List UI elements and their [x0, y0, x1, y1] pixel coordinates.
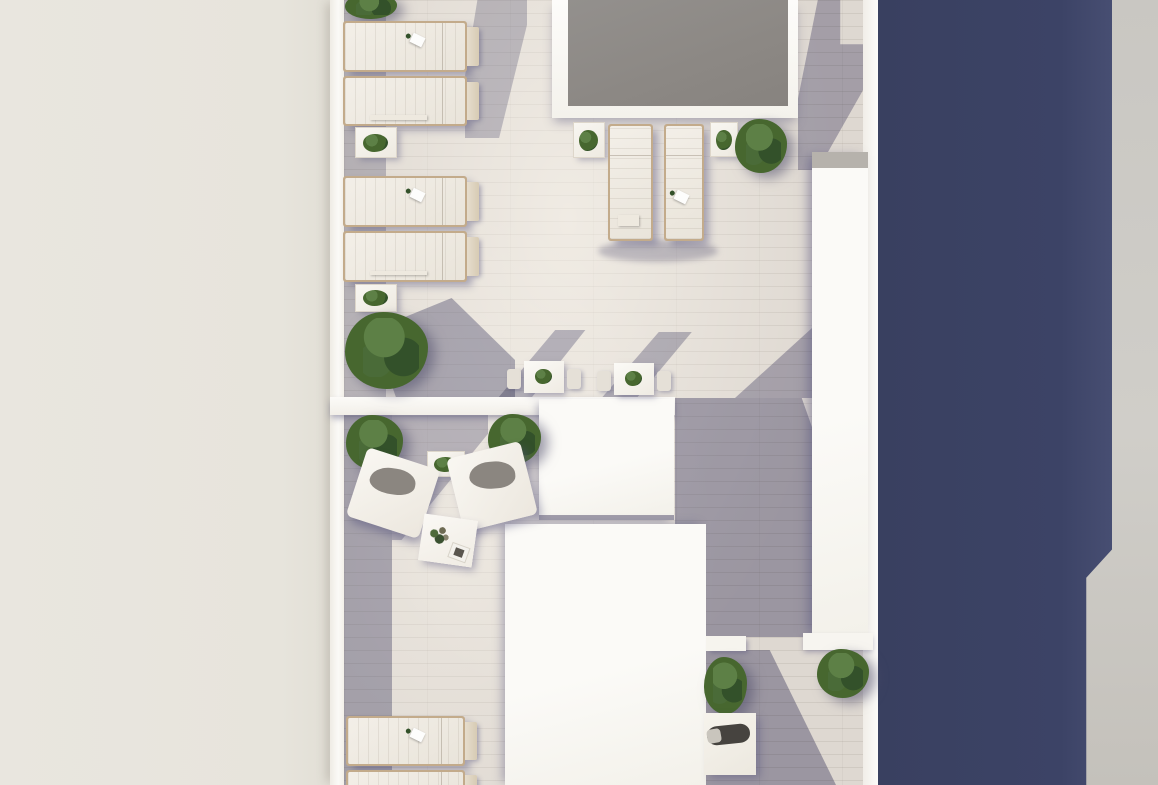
bistro-set-1 [507, 361, 581, 396]
folded-towel [370, 115, 427, 120]
bistro-set-2 [597, 363, 671, 398]
lounger-cushion [348, 718, 463, 764]
lounger-armrest [467, 182, 479, 221]
sun-lounger-1 [343, 21, 467, 72]
armchair-cushion [469, 460, 516, 490]
poolside-table-left [573, 122, 605, 158]
perimeter-wall-west [330, 0, 344, 785]
rooftop-structure-lower [505, 524, 706, 785]
poolside-lounger-1 [608, 124, 653, 241]
lounger-cushion [666, 126, 702, 239]
shrub-left [343, 310, 433, 392]
bottom-shrub-right [816, 648, 872, 700]
shrub-top-left [344, 0, 400, 20]
sun-lounger-2 [343, 76, 467, 126]
sun-lounger-3 [343, 176, 467, 227]
side-table-1 [355, 127, 397, 158]
bistro-table [524, 361, 564, 393]
folded-towel [618, 215, 639, 226]
potted-plant [716, 130, 732, 150]
lounger-cushion [345, 23, 465, 70]
foliage [363, 318, 419, 377]
daybed-pillow [706, 727, 722, 743]
decor-plant [424, 522, 453, 549]
planter-bench [706, 636, 746, 651]
folded-towel [370, 271, 427, 276]
rooftop-terrace-render [0, 0, 1158, 785]
bistro-table [614, 363, 654, 395]
side-table-2 [355, 284, 397, 312]
potted-plant [363, 290, 388, 306]
lounger-cushion [348, 772, 463, 785]
bistro-chair [597, 371, 611, 391]
bistro-chair [507, 369, 521, 389]
table-plant [625, 371, 642, 386]
decor-tray [447, 542, 471, 564]
lounger-armrest [465, 722, 477, 760]
bottom-shrub-left [703, 656, 750, 716]
sun-lounger-5 [346, 716, 465, 766]
poolside-shrub [734, 118, 790, 175]
building-shadow-wall [878, 0, 1112, 785]
foliage [356, 0, 391, 15]
lounger-armrest [467, 237, 479, 276]
foliage [828, 653, 863, 690]
coffee-table [418, 513, 478, 567]
bistro-chair [567, 369, 581, 389]
table-plant [535, 369, 552, 384]
bistro-chair [657, 371, 671, 391]
armchair-cushion [368, 466, 417, 498]
rooftop-structure-east [812, 152, 868, 633]
pool [568, 0, 788, 106]
poolside-lounger-2 [664, 124, 704, 241]
sun-lounger-6 [346, 770, 465, 785]
lounger-cushion [345, 178, 465, 225]
lounger-armrest [467, 82, 479, 120]
rooftop-structure-upper [539, 399, 674, 520]
potted-plant [579, 130, 598, 151]
lounger-armrest [467, 27, 479, 66]
pool-deck-frame [552, 0, 798, 118]
lounger-armrest [465, 775, 477, 785]
daybed [704, 713, 756, 775]
foliage [746, 124, 781, 165]
sun-lounger-4 [343, 231, 467, 282]
potted-plant [363, 134, 388, 152]
foliage [713, 662, 742, 705]
exterior-ground-left [0, 0, 330, 785]
